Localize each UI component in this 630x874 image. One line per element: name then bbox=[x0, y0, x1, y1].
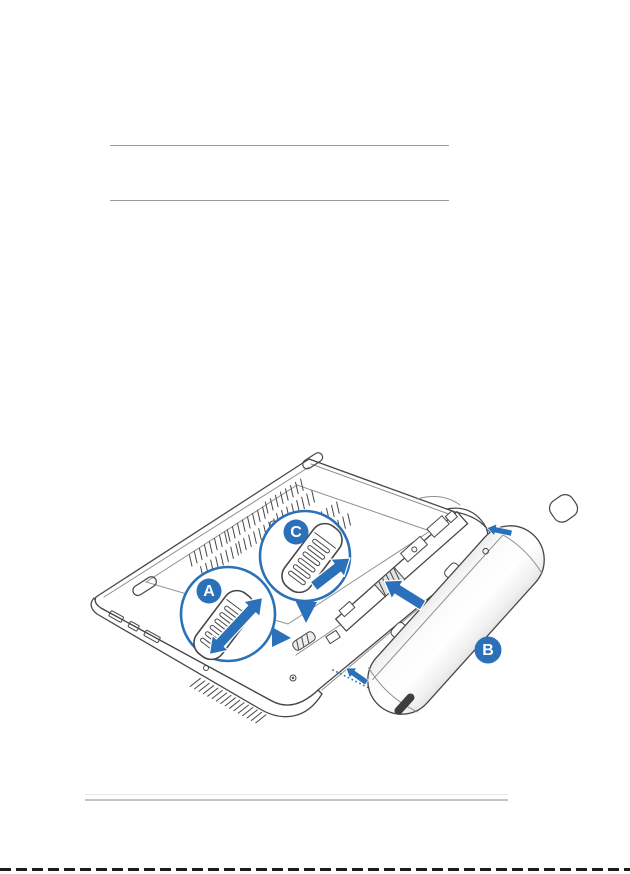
right-hinge-cap bbox=[546, 491, 581, 526]
battery-installation-figure: C A B bbox=[0, 0, 630, 874]
callout-a-label: A bbox=[203, 583, 215, 600]
battery-figure-svg: C A B bbox=[0, 0, 630, 874]
page-edge-dashed-line bbox=[0, 868, 630, 871]
manual-page: C A B bbox=[0, 0, 630, 874]
bottom-divider-line bbox=[85, 799, 508, 801]
bottom-divider-line-faint bbox=[85, 794, 508, 795]
callout-c-label: C bbox=[290, 524, 302, 541]
callout-b: B bbox=[475, 637, 502, 664]
callout-b-label: B bbox=[482, 642, 494, 659]
